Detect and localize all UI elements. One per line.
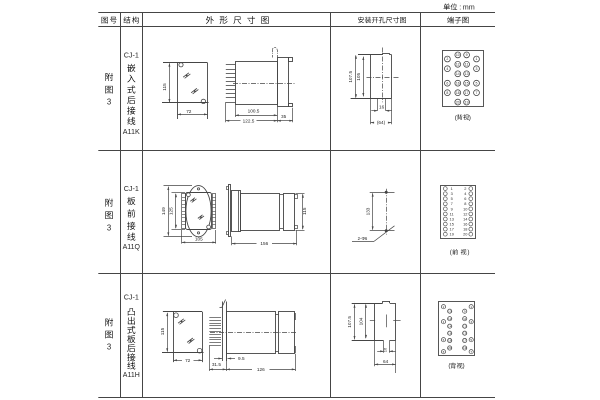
svg-text:122.5: 122.5 [243, 118, 255, 123]
svg-text:19: 19 [463, 346, 467, 350]
svg-text:17: 17 [463, 339, 467, 343]
svg-text:18: 18 [456, 91, 460, 95]
svg-text:64: 64 [383, 359, 389, 364]
svg-text:31.5: 31.5 [212, 362, 222, 367]
svg-text:35: 35 [281, 114, 287, 119]
svg-text:13: 13 [463, 324, 467, 328]
svg-text:11: 11 [463, 317, 466, 321]
svg-text:72: 72 [185, 358, 191, 363]
svg-text:7: 7 [476, 91, 478, 95]
svg-text:12: 12 [456, 63, 460, 67]
svg-text:3: 3 [107, 223, 111, 232]
svg-text:126: 126 [257, 367, 265, 372]
svg-text:15: 15 [465, 81, 469, 85]
svg-text:17: 17 [465, 91, 469, 95]
svg-text:7: 7 [470, 350, 472, 354]
svg-text:11: 11 [465, 63, 469, 67]
svg-text:1: 1 [476, 57, 478, 61]
svg-text:14: 14 [448, 324, 452, 328]
svg-text:9: 9 [466, 53, 468, 57]
svg-text:4: 4 [443, 320, 445, 324]
svg-text:8: 8 [446, 91, 448, 95]
svg-text:100.5: 100.5 [248, 108, 260, 113]
svg-text:2: 2 [446, 57, 448, 61]
svg-text:3: 3 [476, 67, 478, 71]
svg-text:(64): (64) [377, 120, 386, 125]
svg-text:16: 16 [456, 81, 460, 85]
svg-text:12: 12 [448, 317, 452, 321]
svg-text:19: 19 [465, 100, 469, 104]
svg-text:6: 6 [446, 81, 448, 85]
svg-text:115: 115 [162, 83, 167, 91]
svg-text:1: 1 [470, 305, 472, 309]
svg-text:9.5: 9.5 [238, 356, 245, 361]
svg-text:9: 9 [464, 309, 466, 313]
svg-text:16: 16 [379, 105, 385, 110]
svg-text:A11K: A11K [123, 127, 140, 136]
svg-text:13: 13 [465, 72, 469, 76]
svg-text:20: 20 [456, 100, 460, 104]
svg-text:20: 20 [448, 346, 452, 350]
svg-text:Φ6: Φ6 [362, 236, 368, 241]
svg-text:3: 3 [107, 343, 111, 352]
svg-text:): ) [467, 249, 469, 256]
svg-text:8: 8 [443, 350, 445, 354]
svg-text:14: 14 [456, 72, 460, 76]
svg-text:125: 125 [169, 207, 174, 215]
svg-text:115: 115 [160, 327, 165, 335]
svg-text:CJ-1: CJ-1 [124, 184, 139, 193]
svg-text:): ) [463, 363, 465, 370]
svg-text:CJ-1: CJ-1 [124, 51, 139, 60]
svg-text:107.5: 107.5 [348, 71, 353, 83]
svg-text:16: 16 [448, 331, 452, 335]
svg-text::: : [459, 4, 461, 11]
svg-text:18: 18 [448, 339, 452, 343]
svg-text:A11H: A11H [123, 372, 140, 379]
svg-text:105: 105 [195, 237, 203, 242]
svg-text:149: 149 [161, 207, 166, 215]
svg-text:6: 6 [443, 338, 445, 342]
svg-text:3: 3 [107, 97, 111, 106]
svg-text:104: 104 [359, 317, 364, 325]
svg-text:CJ-1: CJ-1 [124, 293, 139, 302]
svg-text:133: 133 [365, 207, 370, 215]
svg-text:105: 105 [356, 73, 361, 81]
svg-text:10: 10 [448, 309, 452, 313]
svg-text:115: 115 [302, 207, 307, 215]
svg-text:3: 3 [470, 320, 472, 324]
svg-text:5: 5 [476, 81, 478, 85]
svg-text:107.5: 107.5 [347, 316, 352, 328]
svg-text:mm: mm [463, 2, 475, 11]
svg-text:): ) [469, 114, 471, 121]
svg-text:19: 19 [450, 232, 454, 237]
svg-text:10: 10 [456, 53, 460, 57]
svg-text:5: 5 [470, 338, 472, 342]
svg-text:2: 2 [443, 305, 445, 309]
svg-text:156: 156 [260, 241, 268, 246]
svg-text:4: 4 [446, 67, 448, 71]
svg-text:15: 15 [463, 331, 467, 335]
svg-text:72: 72 [186, 109, 192, 114]
svg-text:A11Q: A11Q [123, 244, 141, 251]
